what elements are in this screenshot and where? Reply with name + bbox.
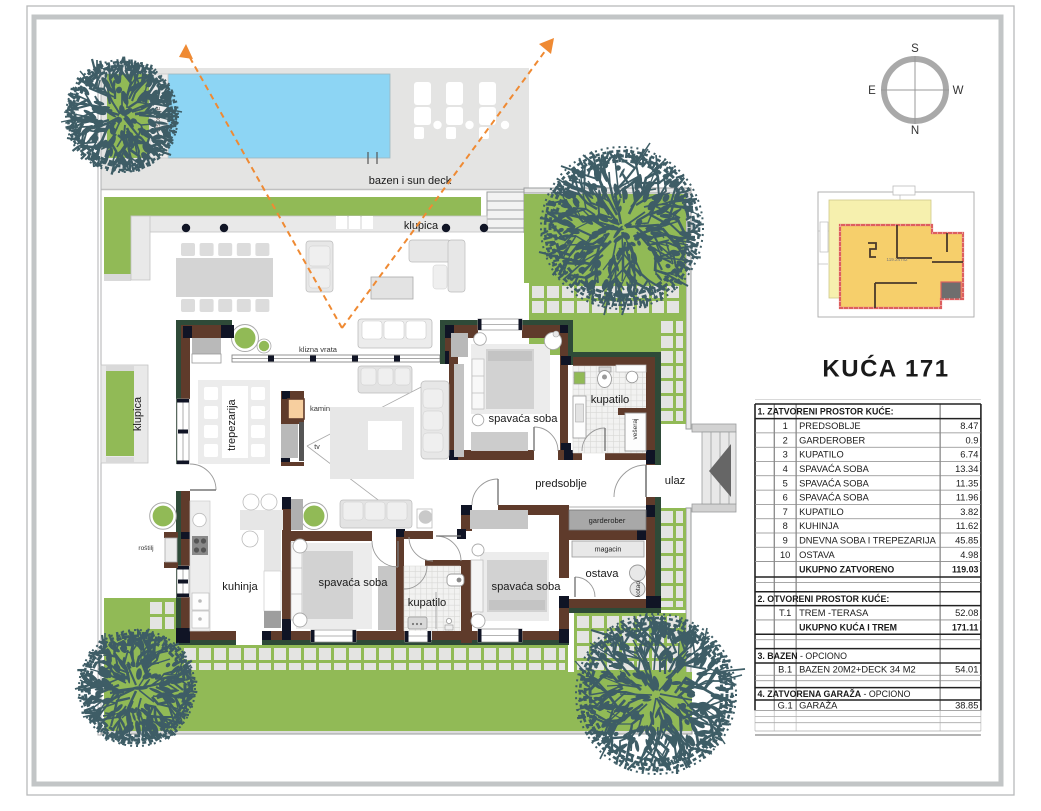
svg-text:3. BAZEN - OPCIONO: 3. BAZEN - OPCIONO (758, 651, 848, 661)
svg-text:2: 2 (783, 435, 788, 445)
svg-text:W: W (953, 85, 964, 97)
svg-text:T.1: T.1 (779, 608, 791, 618)
svg-text:PREDSOBLJE: PREDSOBLJE (799, 421, 860, 431)
svg-text:kuhinja: kuhinja (222, 581, 258, 593)
svg-text:kupatilo: kupatilo (408, 597, 447, 609)
svg-text:0.9: 0.9 (965, 435, 978, 445)
svg-text:UKUPNO ZATVORENO: UKUPNO ZATVORENO (799, 565, 894, 575)
svg-text:119.24 m2: 119.24 m2 (887, 257, 908, 262)
svg-text:171.11: 171.11 (952, 622, 979, 632)
svg-text:UKUPNO KUĆA I TREM: UKUPNO KUĆA I TREM (799, 621, 897, 632)
svg-text:klupica: klupica (404, 220, 439, 232)
svg-text:vešeraj: vešeraj (632, 419, 639, 440)
svg-text:4: 4 (783, 464, 788, 474)
svg-text:kotao: kotao (635, 581, 642, 597)
svg-text:52.08: 52.08 (955, 608, 978, 618)
svg-text:SPAVAĆA SOBA: SPAVAĆA SOBA (799, 464, 870, 474)
svg-text:spavaća soba: spavaća soba (488, 413, 558, 425)
svg-text:magacin: magacin (595, 547, 622, 554)
svg-text:N: N (911, 125, 919, 137)
svg-text:3.82: 3.82 (960, 507, 978, 517)
svg-text:bazen i sun deck: bazen i sun deck (369, 175, 452, 187)
svg-text:spavaća soba: spavaća soba (491, 581, 561, 593)
svg-text:1: 1 (783, 421, 788, 431)
svg-text:38.85: 38.85 (955, 701, 978, 711)
svg-text:9: 9 (783, 535, 788, 545)
svg-text:KUHINJA: KUHINJA (799, 521, 840, 531)
svg-text:spavaća soba: spavaća soba (318, 577, 388, 589)
svg-text:11.35: 11.35 (956, 478, 979, 488)
svg-text:kamin: kamin (310, 404, 330, 413)
svg-text:ulaz: ulaz (665, 475, 686, 487)
svg-text:2. OTVORENI PROSTOR KUĆE:: 2. OTVORENI PROSTOR KUĆE: (758, 593, 890, 604)
svg-text:klizna vrata: klizna vrata (299, 345, 338, 354)
svg-text:G.1: G.1 (778, 701, 793, 711)
svg-text:1. ZATVORENI PROSTOR KUĆE:: 1. ZATVORENI PROSTOR KUĆE: (758, 406, 894, 417)
svg-text:kupatilo: kupatilo (591, 394, 630, 406)
svg-text:ostava: ostava (586, 568, 620, 580)
svg-text:54.01: 54.01 (955, 664, 978, 674)
svg-text:B.1: B.1 (778, 664, 792, 674)
svg-text:6.74: 6.74 (960, 450, 978, 460)
svg-text:E: E (868, 85, 876, 97)
svg-text:11.96: 11.96 (956, 493, 979, 503)
svg-text:7: 7 (783, 507, 788, 517)
svg-text:BAZEN 20M2+DECK 34 M2: BAZEN 20M2+DECK 34 M2 (799, 664, 916, 674)
svg-text:SPAVAĆA SOBA: SPAVAĆA SOBA (799, 478, 870, 488)
svg-text:4.98: 4.98 (960, 550, 978, 560)
svg-text:5: 5 (783, 478, 788, 488)
svg-text:6: 6 (783, 493, 788, 503)
svg-text:KUPATILO: KUPATILO (799, 507, 844, 517)
svg-text:S: S (911, 43, 919, 55)
svg-text:4. ZATVORENA GARAŽA - OPCIONO: 4. ZATVORENA GARAŽA - OPCIONO (758, 688, 911, 699)
svg-text:8: 8 (783, 521, 788, 531)
svg-text:119.03: 119.03 (952, 565, 979, 575)
svg-text:roštilj: roštilj (138, 545, 153, 552)
svg-text:OSTAVA: OSTAVA (799, 550, 835, 560)
svg-text:KUPATILO: KUPATILO (799, 450, 844, 460)
svg-text:45.85: 45.85 (955, 535, 978, 545)
svg-text:garderober: garderober (589, 516, 626, 525)
svg-text:KUĆA 171: KUĆA 171 (822, 355, 949, 383)
svg-text:SPAVAĆA SOBA: SPAVAĆA SOBA (799, 493, 870, 503)
svg-text:GARDEROBER: GARDEROBER (799, 435, 865, 445)
svg-text:GARAŽA: GARAŽA (799, 701, 838, 711)
svg-text:trepezarija: trepezarija (226, 398, 238, 450)
svg-text:TREM -TERASA: TREM -TERASA (799, 608, 869, 618)
svg-text:10: 10 (780, 550, 790, 560)
svg-text:predsoblje: predsoblje (535, 478, 587, 490)
svg-text:13.34: 13.34 (955, 464, 978, 474)
svg-text:11.62: 11.62 (956, 521, 979, 531)
svg-text:3: 3 (783, 450, 788, 460)
svg-text:klupica: klupica (132, 396, 144, 431)
svg-text:DNEVNA SOBA I TREPEZARIJA: DNEVNA SOBA I TREPEZARIJA (799, 535, 937, 545)
svg-text:8.47: 8.47 (960, 421, 978, 431)
svg-text:tv: tv (314, 444, 320, 451)
